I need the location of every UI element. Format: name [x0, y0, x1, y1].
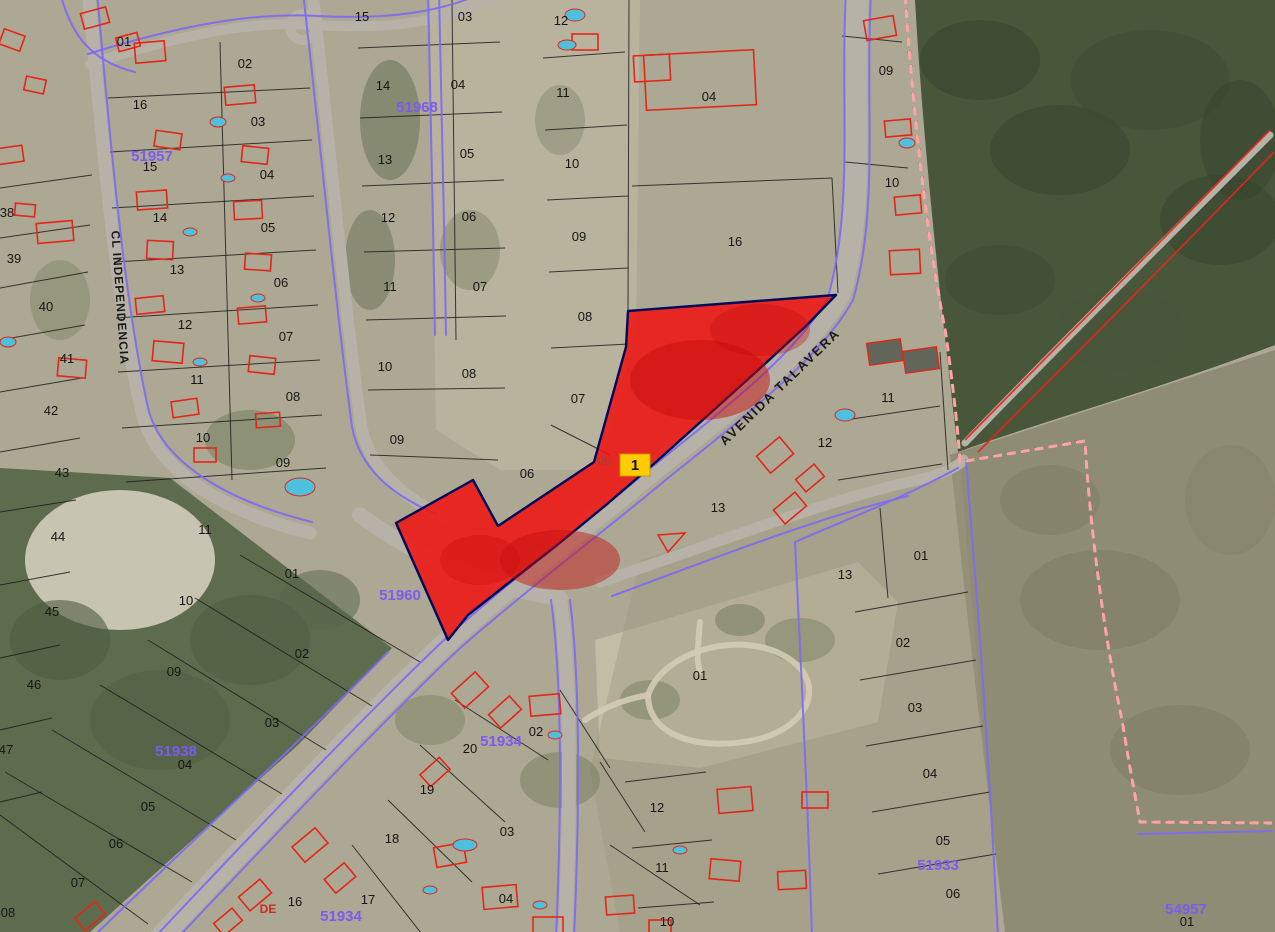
block-number: 51938: [155, 743, 197, 760]
swimming-pool: [453, 839, 477, 851]
parcel-number: 11: [198, 522, 212, 537]
parcel-number: 12: [650, 800, 664, 815]
parcel-number: 09: [276, 455, 290, 470]
parcel-number: 09: [390, 432, 404, 447]
parcel-number: 05: [460, 146, 474, 161]
parcel-number: 03: [251, 114, 265, 129]
parcel-number: 08: [578, 309, 592, 324]
cadastral-map-viewport[interactable]: 0102160315041405130612071108100938394041…: [0, 0, 1275, 932]
parcel-number: 01: [914, 548, 928, 563]
swimming-pool: [221, 174, 235, 182]
parcel-number: 09: [572, 229, 586, 244]
parcel-number: 01: [285, 566, 299, 581]
parcel-number: 41: [60, 351, 74, 366]
parcel-number: 04: [702, 89, 716, 104]
parcel-number: 16: [133, 97, 147, 112]
parcel-number: 18: [385, 831, 399, 846]
parcel-number: 19: [420, 782, 434, 797]
swimming-pool: [285, 478, 315, 496]
parcel-number: 01: [693, 668, 707, 683]
parcel-number: 13: [170, 262, 184, 277]
parcel-number: 15: [355, 9, 369, 24]
parcel-number: 47: [0, 742, 13, 757]
swimming-pool: [193, 358, 207, 366]
parcel-number: 04: [451, 77, 465, 92]
parcel-number: 13: [378, 152, 392, 167]
parcel-number: 12: [381, 210, 395, 225]
block-number: 51934: [320, 908, 362, 925]
parcel-number: 07: [279, 329, 293, 344]
parcel-number: 20: [463, 741, 477, 756]
parcel-number: 07: [473, 279, 487, 294]
parcel-number: 44: [51, 529, 65, 544]
parcel-number: 01: [117, 34, 131, 49]
parcel-number: 07: [571, 391, 585, 406]
parcel-number: 04: [923, 766, 937, 781]
parcel-number: 08: [1, 905, 15, 920]
block-number: 51968: [396, 99, 438, 116]
red-annotation: 05: [597, 454, 611, 468]
swimming-pool: [673, 846, 687, 854]
parcel-number: 11: [556, 85, 570, 100]
parcel-number: 08: [462, 366, 476, 381]
parcel-number: 45: [45, 604, 59, 619]
parcel-number: 16: [728, 234, 742, 249]
parcel-number: 42: [44, 403, 58, 418]
parcel-number: 04: [260, 167, 274, 182]
parcel-number: 08: [286, 389, 300, 404]
parcel-number: 03: [458, 9, 472, 24]
block-number: 51960: [379, 587, 421, 604]
parcel-number: 06: [462, 209, 476, 224]
parcel-number: 10: [885, 175, 899, 190]
parcel-number: 04: [499, 891, 513, 906]
parcel-number: 03: [908, 700, 922, 715]
parcel-number: 06: [274, 275, 288, 290]
parcel-1-marker[interactable]: 1: [620, 454, 650, 476]
sports-court: [903, 347, 940, 374]
parcel-number: 11: [190, 372, 204, 387]
swimming-pool: [183, 228, 197, 236]
block-number: 54957: [1165, 901, 1207, 918]
parcel-number: 10: [196, 430, 210, 445]
parcel-number: 43: [55, 465, 69, 480]
parcel-number: 10: [179, 593, 193, 608]
parcel-number: 02: [896, 635, 910, 650]
parcel-number: 06: [520, 466, 534, 481]
parcel-number: 12: [178, 317, 192, 332]
parcel-number: 09: [167, 664, 181, 679]
parcel-number: 13: [838, 567, 852, 582]
block-number: 51934: [480, 733, 522, 750]
parcel-number: 06: [946, 886, 960, 901]
parcel-number: 12: [818, 435, 832, 450]
swimming-pool: [533, 901, 547, 909]
swimming-pool: [210, 117, 226, 127]
parcel-number: 10: [565, 156, 579, 171]
parcel-number: 06: [109, 836, 123, 851]
swimming-pool: [558, 40, 576, 50]
swimming-pool: [835, 409, 855, 421]
swimming-pool: [251, 294, 265, 302]
parcel-number: 02: [529, 724, 543, 739]
parcel-number: 11: [383, 279, 397, 294]
parcel-number: 03: [265, 715, 279, 730]
parcel-number: 39: [7, 251, 21, 266]
block-number: 51933: [917, 857, 959, 874]
swimming-pool: [899, 138, 915, 148]
parcel-marker-label: 1: [631, 457, 639, 474]
parcel-number: 40: [39, 299, 53, 314]
parcel-number: 38: [0, 205, 14, 220]
swimming-pool: [548, 731, 562, 739]
swimming-pool: [0, 337, 16, 347]
parcel-number: 10: [660, 914, 674, 929]
parcel-number: 02: [238, 56, 252, 71]
parcel-number: 05: [261, 220, 275, 235]
sports-court: [867, 339, 904, 366]
red-annotation: DE: [260, 902, 277, 916]
parcel-number: 14: [153, 210, 167, 225]
swimming-pool: [423, 886, 437, 894]
parcel-number: 07: [71, 875, 85, 890]
parcel-number: 16: [288, 894, 302, 909]
parcel-number: 14: [376, 78, 390, 93]
parcel-number: 09: [879, 63, 893, 78]
parcel-number: 03: [500, 824, 514, 839]
parcel-number: 05: [936, 833, 950, 848]
parcel-number: 05: [141, 799, 155, 814]
parcel-number: 46: [27, 677, 41, 692]
block-number: 51957: [131, 148, 173, 165]
parcel-number: 12: [554, 13, 568, 28]
parcel-number: 11: [655, 860, 669, 875]
parcel-number: 11: [881, 390, 895, 405]
parcel-number: 02: [295, 646, 309, 661]
parcel-number: 13: [711, 500, 725, 515]
parcel-number: 17: [361, 892, 375, 907]
parcel-number: 10: [378, 359, 392, 374]
